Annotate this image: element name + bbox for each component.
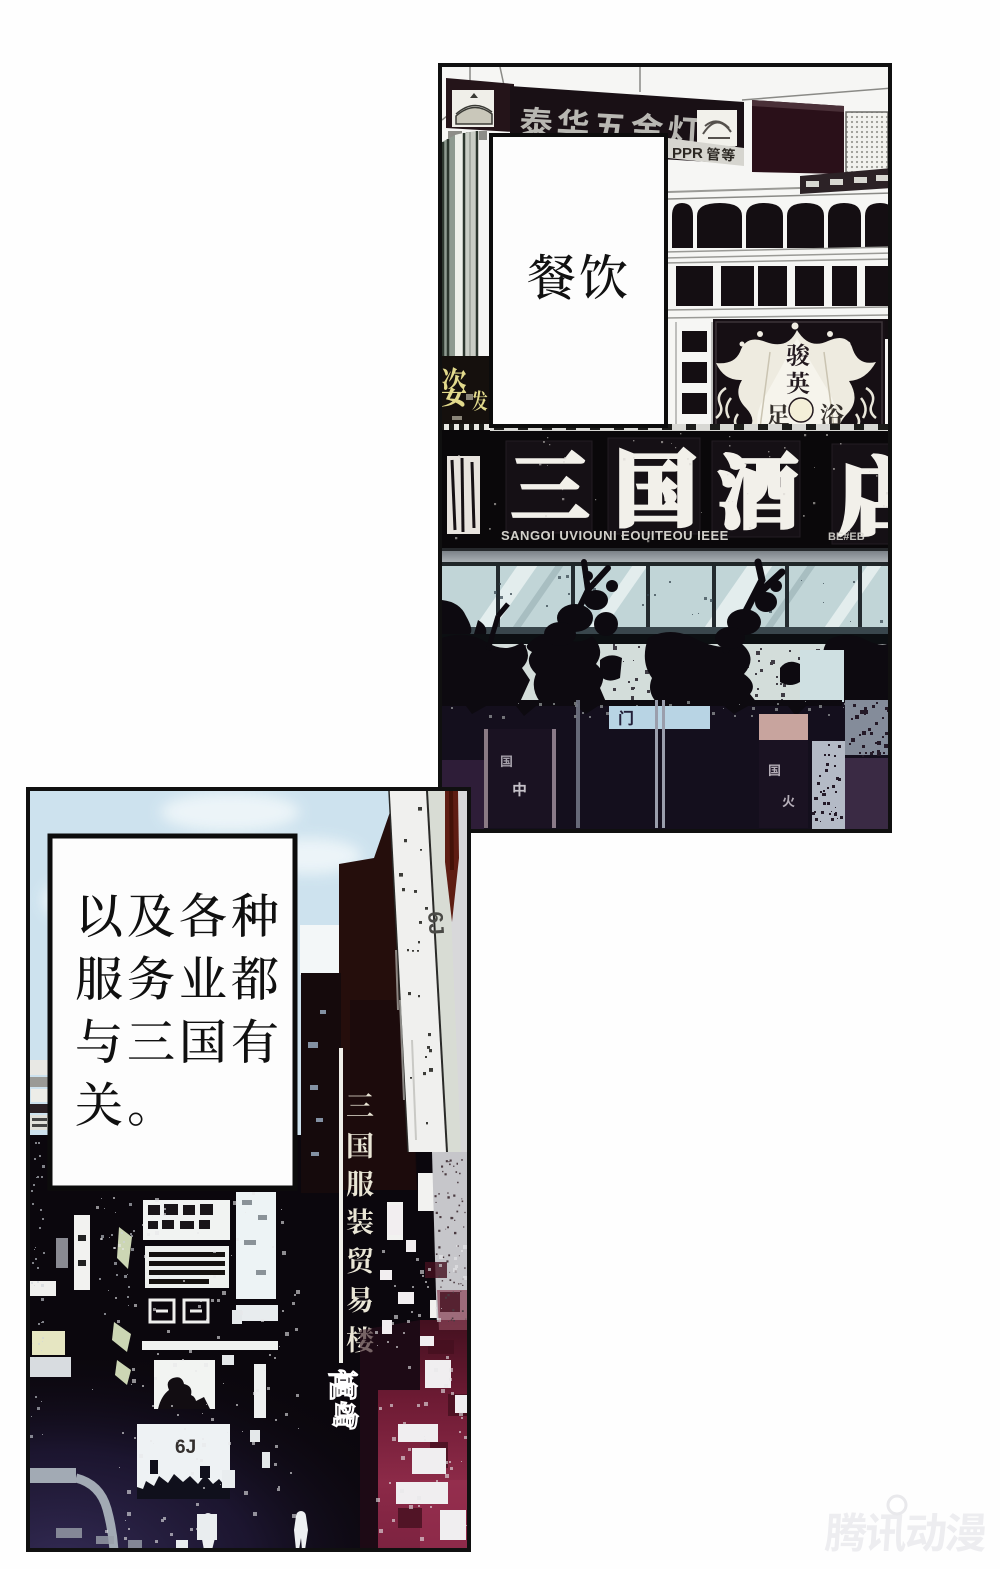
svg-text:6J: 6J — [423, 911, 448, 936]
svg-text:SANGOI UVIOUNI EOUITEOU IEEE: SANGOI UVIOUNI EOUITEOU IEEE — [501, 528, 729, 543]
svg-text:BE#EB: BE#EB — [828, 531, 865, 543]
svg-text:6J: 6J — [175, 1437, 196, 1458]
svg-text:PPR: PPR — [672, 145, 703, 162]
